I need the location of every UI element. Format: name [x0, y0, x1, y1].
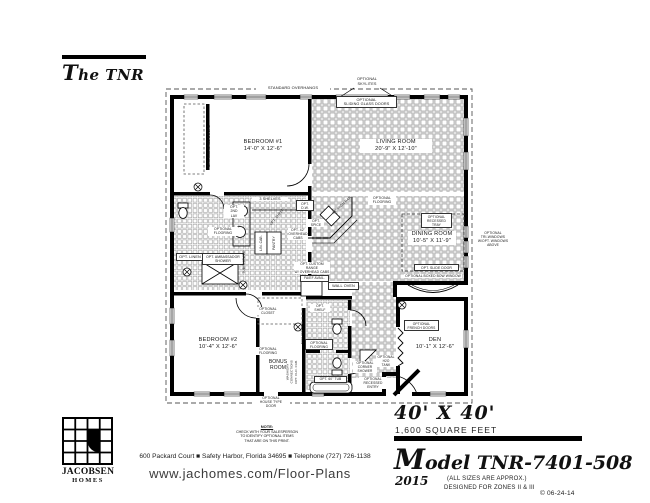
label-opt-spice: OPT. SPICE — [308, 219, 324, 227]
label-lin-cab: LIN. CAB. — [259, 230, 263, 256]
room-living-room: LIVING ROOM 20'-9" X 12'-10" — [360, 139, 432, 153]
model-year: 2015 — [395, 474, 428, 488]
label-3-shelves: 3 SHELVES — [252, 197, 288, 202]
label-opt-linen: OPT. LINEN — [176, 253, 204, 261]
label-opt-custom-range: OPT. CUSTOM RANGE W/ OVERHEAD CABS — [294, 262, 330, 274]
model-divider-rule — [394, 436, 582, 441]
label-optional-tri-windows: OPTIONAL TRI-WINDOWS W/OPT. WINDOWS ABOV… — [476, 231, 510, 247]
label-fa-ef-avail: FA/EF AVAIL. — [300, 275, 329, 282]
model-number: Model TNR-7401-508 — [394, 443, 594, 476]
label-optional-sliding-glass-doors: OPTIONAL SLIDING GLASS DOORS — [336, 96, 397, 108]
label-optional-french-doors: OPTIONAL FRENCH DOORS — [404, 320, 439, 331]
label-optional-closet-bedroom2: OPTIONAL CLOSET — [254, 307, 282, 315]
label-opt-mirrored-doors: OPT. MIRRORED DOORS — [207, 118, 211, 174]
logo-text-jacobsen: JACOBSEN — [58, 467, 118, 477]
label-optional-house-type-door: OPTIONAL HOUSE TYPE DOOR — [252, 396, 290, 408]
page-title: The TNR — [62, 55, 146, 85]
label-optional-flooring-bath2: OPTIONAL FLOORING — [305, 339, 333, 350]
label-opt-dishwasher: OPT. D.W. — [296, 200, 314, 211]
room-den: DEN 10'-1" X 12'-6" — [410, 337, 460, 351]
label-opt-60in-tub: OPT. 60" TUB — [314, 376, 347, 383]
label-wash-dry-connections: WASH/DRY CONNECTIONS — [286, 355, 294, 389]
label-opt-ambassador-shower: OPT. AMBASSADOR SHOWER — [202, 253, 244, 265]
label-opt-42in-overhead-cabs: OPT. 42" OVERHEAD CABS — [288, 228, 308, 240]
label-tub-shower: TUB/SHOWER — [242, 245, 246, 279]
copyright-date: © 06-24-14 — [540, 490, 575, 497]
floorplan-page: { "header": { "title": "The TNR" }, "pla… — [0, 0, 650, 503]
logo-text-homes: HOMES — [58, 477, 118, 484]
label-optional-recessed-entry: OPTIONAL RECESSED ENTRY — [359, 377, 387, 389]
jacobsen-logo — [62, 417, 114, 467]
label-opt-slide-door: OPT. SLIDE DOOR — [414, 264, 459, 271]
label-optional-flooring-bedroom2: OPTIONAL FLOORING — [254, 347, 282, 355]
room-dining-room: DINING ROOM 10'-5" X 11'-9" — [408, 231, 456, 245]
label-opt-shelf-bath2: OPT. SHELF — [310, 304, 330, 312]
note-body: CHECK WITH YOUR SALESPERSON TO IDENTIFY … — [222, 430, 312, 445]
label-optional-boxed-bow-window: OPTIONAL BOXED BOW WINDOW — [404, 274, 462, 278]
label-optional-h2o-tank: OPTIONAL H2O TANK — [376, 355, 396, 367]
note-title: NOTE: — [236, 424, 298, 429]
label-pantry: PANTRY — [272, 230, 276, 256]
label-opt-2nd-lav: OPT. 2ND LAV — [224, 205, 244, 218]
label-optional-flooring-bath1: OPTIONAL FLOORING — [208, 227, 238, 236]
label-optional-skylites: OPTIONAL SKYLITES — [346, 77, 388, 86]
label-standard-overhangs: STANDARD OVERHANGS — [256, 85, 330, 90]
room-bedroom-2: BEDROOM #2 10'-4" X 12'-6" — [184, 337, 252, 351]
zones-note: DESIGNED FOR ZONES II & III — [444, 485, 535, 491]
label-optional-flooring-kitchen: OPTIONAL FLOORING — [368, 196, 396, 205]
website-url: www.jachomes.com/Floor-Plans — [148, 466, 352, 481]
address-line: 600 Packard Court ■ Safety Harbor, Flori… — [124, 453, 386, 460]
plan-size: 40' X 40' — [394, 402, 496, 424]
sizes-approx-note: (ALL SIZES ARE APPROX.) — [447, 476, 527, 482]
room-bedroom-1: BEDROOM #1 14'-0" X 12'-6" — [228, 139, 298, 153]
label-opt-clo-cab: OPT. CLO. CAB. — [295, 356, 299, 386]
label-wall-oven: WALL OVEN — [328, 282, 359, 290]
square-feet: 1,600 SQUARE FEET — [395, 425, 497, 435]
label-optional-corner-shower: OPTIONAL CORNER SHOWER — [353, 361, 377, 373]
label-optional-recessed-tray: OPTIONAL RECESSED TRAY — [421, 213, 452, 228]
